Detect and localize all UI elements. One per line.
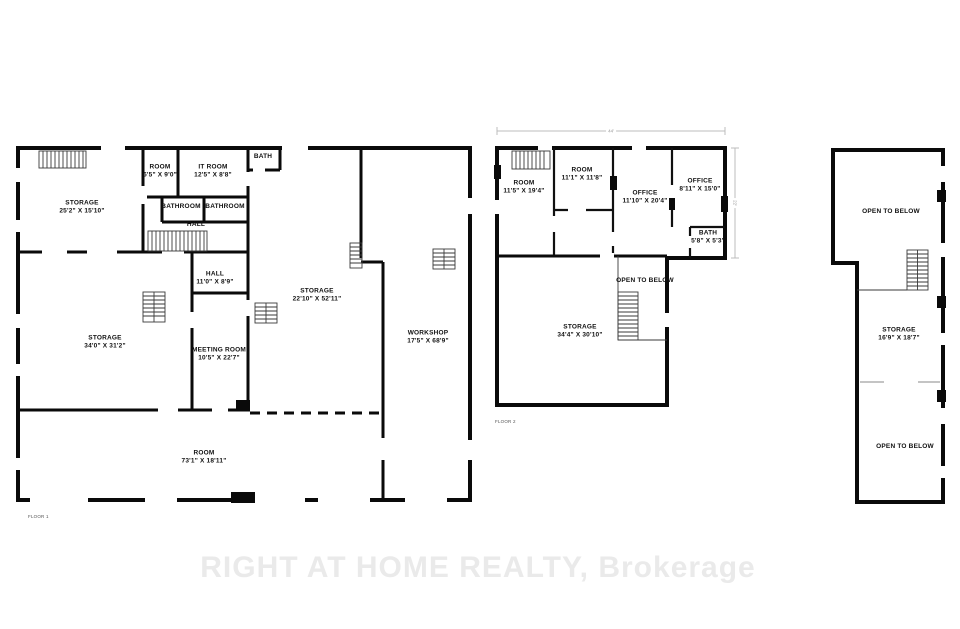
room-label: BATH [254,153,272,161]
room-label: BATHROOM [161,203,200,211]
room-label: BATH5'8" X 5'3" [691,230,725,247]
room-label: ROOM11'1" X 11'8" [562,167,603,184]
room-label: STORAGE22'10" X 52'11" [293,288,342,305]
room-label: OPEN TO BELOW [616,277,674,285]
brokerage-watermark: RIGHT AT HOME REALTY, Brokerage [200,551,756,585]
room-label: OFFICE11'10" X 20'4" [623,190,668,207]
room-label: OPEN TO BELOW [862,208,920,216]
room-label: HALL [187,221,205,229]
floor1-plan [14,144,474,504]
room-label: STORAGE25'2" X 15'10" [59,200,104,217]
staircase-icon [512,151,550,169]
dimension-label: 22' [733,198,738,208]
room-label: OPEN TO BELOW [876,443,934,451]
room-label: HALL11'0" X 8'9" [196,271,233,288]
dimension-label: 44' [606,129,616,134]
staircase-icon [148,231,207,251]
room-label: IT ROOM12'5" X 8'8" [194,164,232,181]
room-label: ROOM11'5" X 19'4" [503,180,544,197]
room-label: BATHROOM [205,203,244,211]
staircase-icon [618,292,638,340]
room-label: ROOM73'1" X 18'11" [182,450,227,467]
floorplan-page: STORAGE25'2" X 15'10" ROOM6'5" X 9'0" IT… [0,0,960,629]
staircase-icon [433,249,455,269]
room-label: ROOM6'5" X 9'0" [143,164,177,181]
room-label: WORKSHOP17'5" X 68'9" [407,330,449,347]
room-label: STORAGE34'4" X 30'10" [557,324,602,341]
floor1-caption: FLOOR 1 [28,514,49,519]
room-label: OFFICE8'11" X 15'0" [679,178,720,195]
room-label: STORAGE34'0" X 31'2" [84,335,126,352]
staircase-icon [255,303,277,323]
room-label: STORAGE16'9" X 18'7" [878,327,920,344]
floor2-plan [493,127,739,405]
room-label: MEETING ROOM10'5" X 22'7" [192,347,246,364]
staircase-icon [143,292,165,322]
floor2-caption: FLOOR 2 [495,419,516,424]
staircase-icon [39,151,86,168]
floorplan-drawing [0,0,960,629]
staircase-icon [907,250,928,290]
